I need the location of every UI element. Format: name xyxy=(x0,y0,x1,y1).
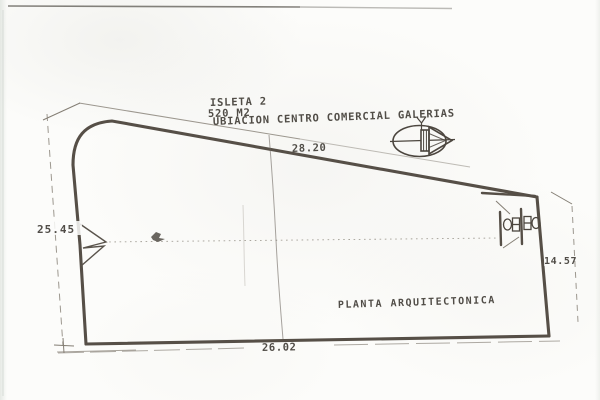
door-swing-top xyxy=(496,201,510,214)
labels: ISLETA 2 520 M2 UBIACION CENTRO COMERCIA… xyxy=(35,96,577,354)
plan-title: PLANTA ARQUITECTONICA xyxy=(338,295,496,311)
wall-top xyxy=(73,121,537,197)
bathroom-detail xyxy=(482,193,540,248)
scan-top-edge-line xyxy=(8,6,300,7)
dimension-top: 28.20 xyxy=(292,142,327,155)
paper-crease xyxy=(243,205,245,286)
bottom-dimension-line-left xyxy=(58,348,244,353)
plan-smudge-marker xyxy=(151,232,165,242)
entrance-notch-mark xyxy=(80,224,106,266)
bathroom-top-wall xyxy=(482,193,535,196)
bottom-dimension-line-right xyxy=(334,341,560,345)
dimension-bottom: 26.02 xyxy=(262,341,297,354)
bathroom-left-wall xyxy=(500,212,501,245)
dimension-lines xyxy=(43,103,578,353)
right-dimension-top-tick xyxy=(551,192,572,204)
dimension-left: 25.45 xyxy=(37,223,75,236)
plot-outline xyxy=(73,121,549,344)
centerline-dotted xyxy=(104,238,498,242)
compass-banner xyxy=(421,130,429,151)
left-dimension-bottom-tick xyxy=(54,338,74,353)
interior-divider-line xyxy=(269,135,283,339)
door-swing-bottom xyxy=(503,237,519,248)
scan-top-edge-line-fade xyxy=(300,7,452,9)
wall-left xyxy=(73,165,86,344)
wc-toilet-icon-right xyxy=(524,217,540,230)
left-dimension-top-tick xyxy=(43,103,80,120)
north-arrow-compass-icon xyxy=(390,117,455,157)
bathroom-center-wall xyxy=(521,209,522,244)
scanned-plan-page: ISLETA 2 520 M2 UBIACION CENTRO COMERCIA… xyxy=(0,0,600,400)
plan-drawing: ISLETA 2 520 M2 UBIACION CENTRO COMERCIA… xyxy=(0,0,600,400)
wc-toilet-icon-left xyxy=(504,218,520,231)
dimension-right: 14.57 xyxy=(544,256,577,267)
